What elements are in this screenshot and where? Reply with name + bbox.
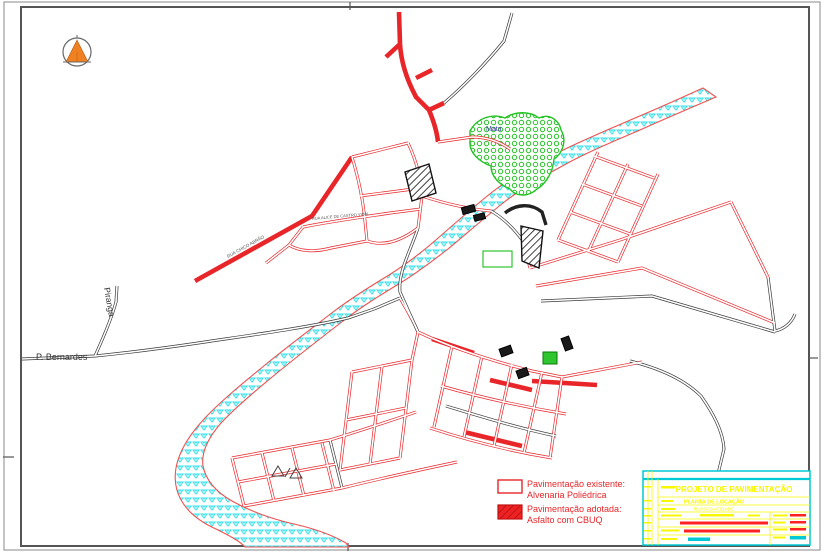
tb-entry-bar [644,522,651,524]
road-casing [416,70,432,78]
road-centerline [289,227,367,251]
tb-entry-bar [790,521,806,524]
road-casing [444,13,512,103]
legend-existing-title: Pavimentação existente: [527,479,625,489]
tb-entry-bar [790,514,806,517]
drawing-sheet: Mata RUA ALICE DE CASTRO VIDALRUA CHICO … [0,0,824,553]
road-casing [352,157,367,241]
road-centerline [731,202,768,277]
black-building [561,336,573,351]
tb-entry-bar [684,530,760,533]
road-casing [505,206,546,225]
tb-entry-bar [644,500,651,502]
road-casing [386,44,400,57]
road-centerline [562,362,642,377]
tb-entry-bar [661,486,675,489]
tb-entry-bar [773,529,787,531]
road-centerline [444,13,512,103]
road-centerline [418,332,562,377]
black-building [499,345,513,357]
piranga-label: Piranga [102,287,117,318]
legend-adopted-subtitle: Asfalto com CBUQ [527,515,603,525]
road-casing [490,380,532,390]
inner-border [21,7,809,546]
legend-adopted-title: Pavimentação adotada: [527,504,622,514]
legend-swatch-existing [498,480,522,493]
road-centerline [630,361,724,478]
tb-entry-bar [748,515,760,517]
tb-entry-bar [644,530,651,532]
road-centerline [244,488,342,506]
road-casing [429,103,444,110]
tb-entry-bar [661,508,675,510]
tb-entry-bar [644,508,651,510]
tb-entry-bar [700,514,734,517]
road-centerline [618,174,658,262]
black-building [516,367,529,378]
legend: Pavimentação existente: Alvenaria Poliéd… [498,479,625,525]
road-centerline [494,364,512,446]
tb-entry-bar [680,522,768,525]
road-centerline [550,377,562,458]
road-centerline [412,332,418,360]
title-block-title: PROJETO DE PAVIMENTAÇÃO [676,485,793,494]
tb-entry-bar [790,536,806,540]
title-block-subtitle: PLANTA DE LOCAÇÃO [684,499,745,506]
green-building [543,352,557,364]
legend-swatch-adopted [498,505,522,519]
road-centerline [340,372,352,470]
tb-entry-bar [773,515,787,517]
road-casing [430,428,552,458]
tb-entry-bar [644,515,651,517]
tb-entry-bar [773,522,785,524]
road-centerline [524,372,542,453]
road-casing [541,296,775,332]
road-centerline [367,228,418,243]
title-block: PROJETO DE PAVIMENTAÇÃO PLANTA DE LOCAÇÃ… [643,471,810,545]
tb-entry-bar [661,530,679,532]
tb-entry-bar [688,538,710,542]
tb-entry-bar [773,537,785,539]
road-casing [399,12,429,110]
legend-existing-subtitle: Alvenaria Poliédrica [527,490,607,500]
road-casing [532,381,597,385]
road-centerline [352,143,408,157]
hatched-building [405,164,436,201]
title-block-line3: RUAS DA CIDADE [694,507,735,513]
tb-entry-bar [790,528,806,531]
road-casing [429,110,438,142]
road-centerline [374,298,400,309]
tb-entry-bar [661,538,677,540]
tb-entry-bar [644,538,651,540]
tb-entry-bar [661,500,673,502]
road-casing [418,332,562,377]
road-centerline [266,245,289,263]
road-network [22,12,795,506]
tb-entry-bar [644,486,651,488]
green-outline-building [483,251,512,267]
road-centerline [541,296,775,332]
mata-label: Mata [486,126,502,133]
p-bernardes-label: P. Bernardes [36,352,88,362]
map-canvas: Mata RUA ALICE DE CASTRO VIDALRUA CHICO … [0,0,824,553]
tb-entry-bar [661,515,681,517]
mata-area [470,113,564,195]
mata-body [470,113,564,195]
road-centerline [570,212,630,234]
road-centerline [232,440,330,458]
north-arrow-icon [63,35,91,66]
road-casing [491,211,523,241]
hatched-building [521,226,543,268]
